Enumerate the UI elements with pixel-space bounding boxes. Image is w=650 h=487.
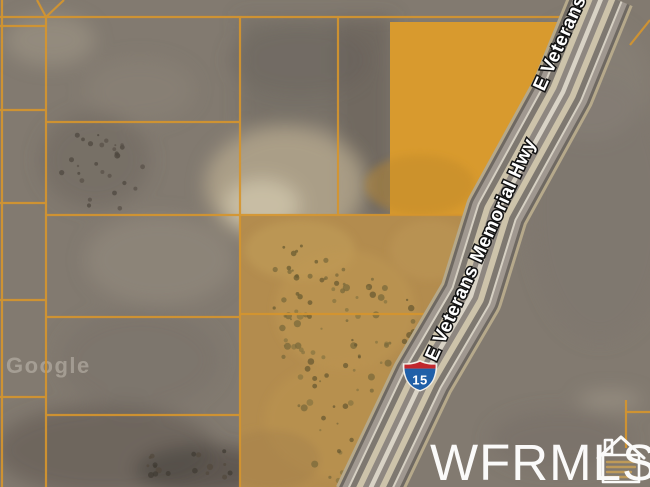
google-watermark: Google: [6, 353, 91, 378]
wfrmls-watermark: WFRMLS: [430, 434, 650, 487]
satellite-map: Google E Veteran: [0, 0, 650, 487]
shield-route-number: 15: [412, 373, 427, 388]
satellite-map-canvas: Google E Veteran: [0, 0, 650, 487]
wfrmls-watermark-text: WFRMLS: [430, 434, 650, 487]
